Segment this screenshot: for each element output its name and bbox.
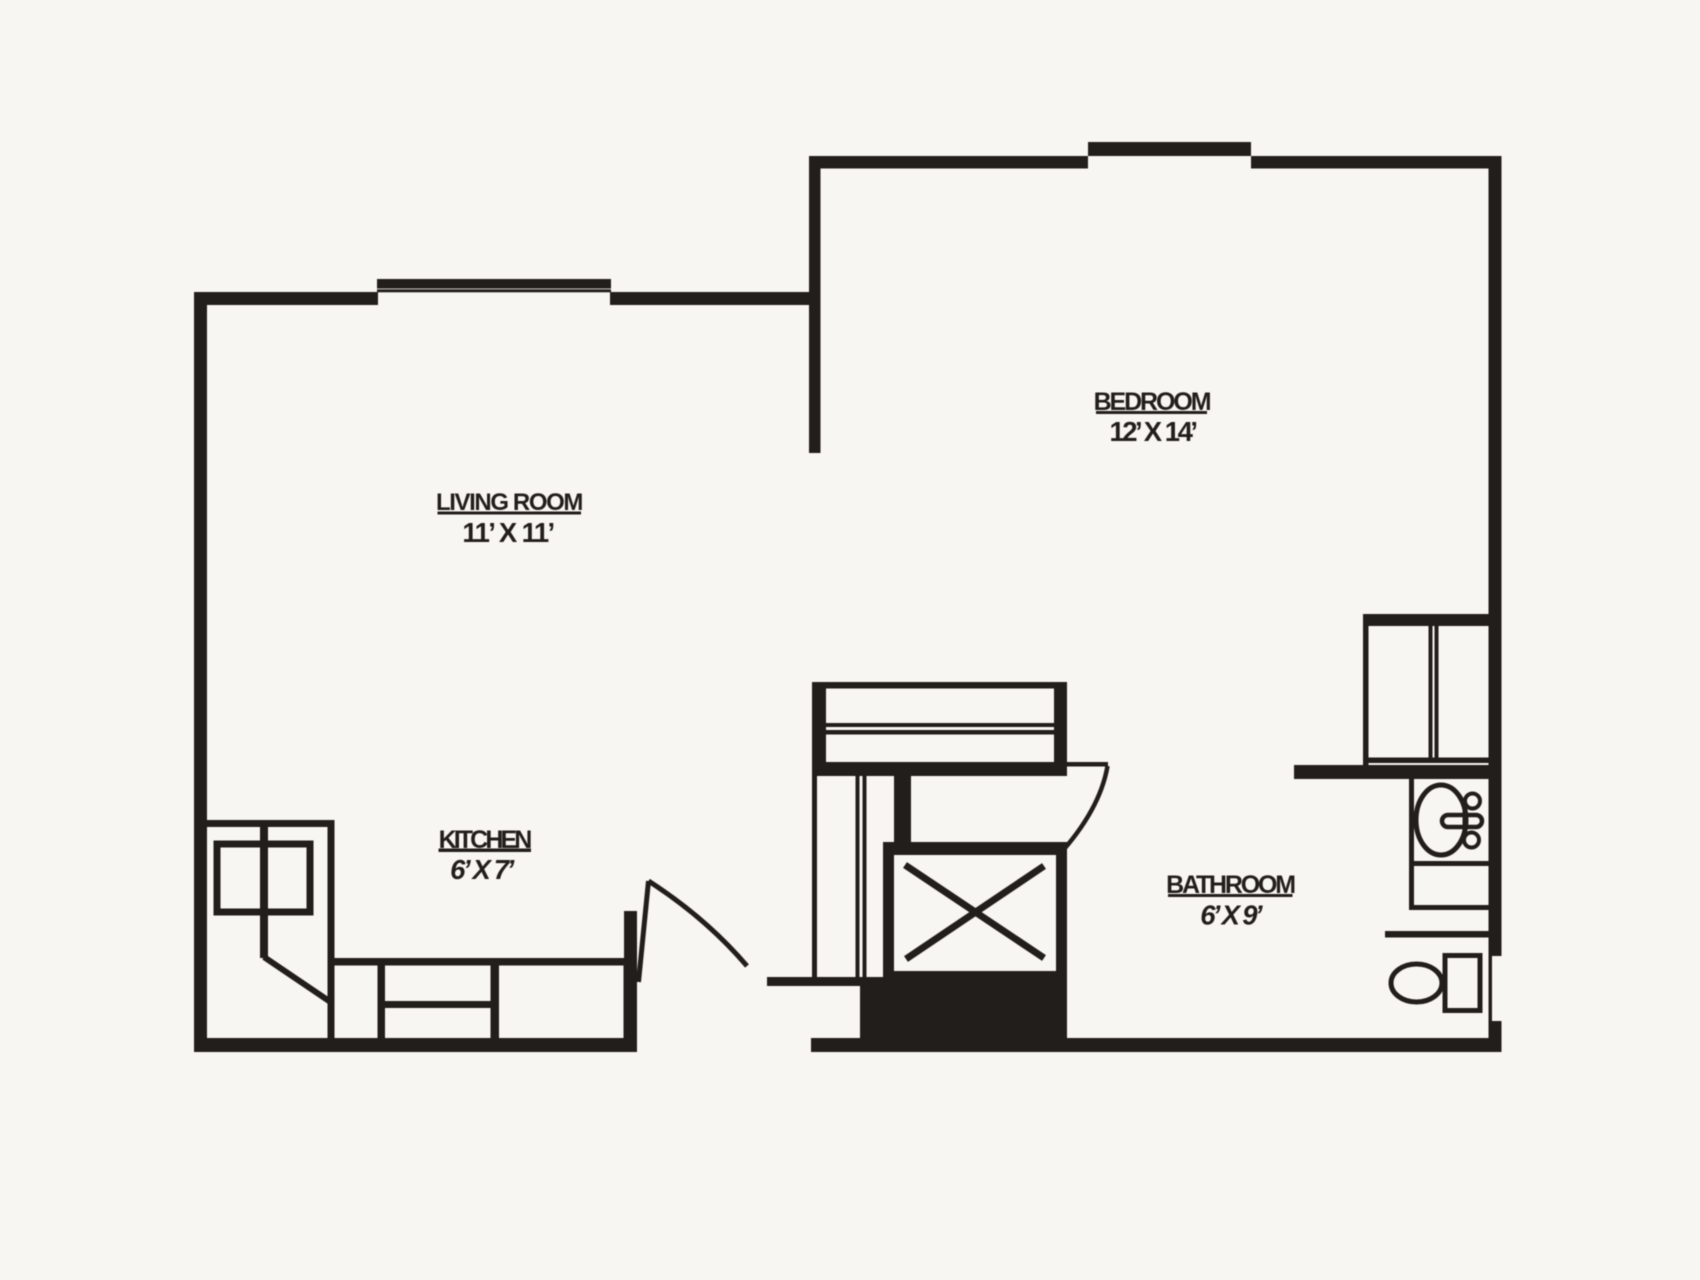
svg-text:6’ X 7’: 6’ X 7’ xyxy=(450,854,514,885)
svg-text:12’ X 14’: 12’ X 14’ xyxy=(1109,416,1196,447)
svg-text:11’ X 11’: 11’ X 11’ xyxy=(462,517,553,548)
svg-text:6’ X 9’: 6’ X 9’ xyxy=(1200,900,1263,931)
